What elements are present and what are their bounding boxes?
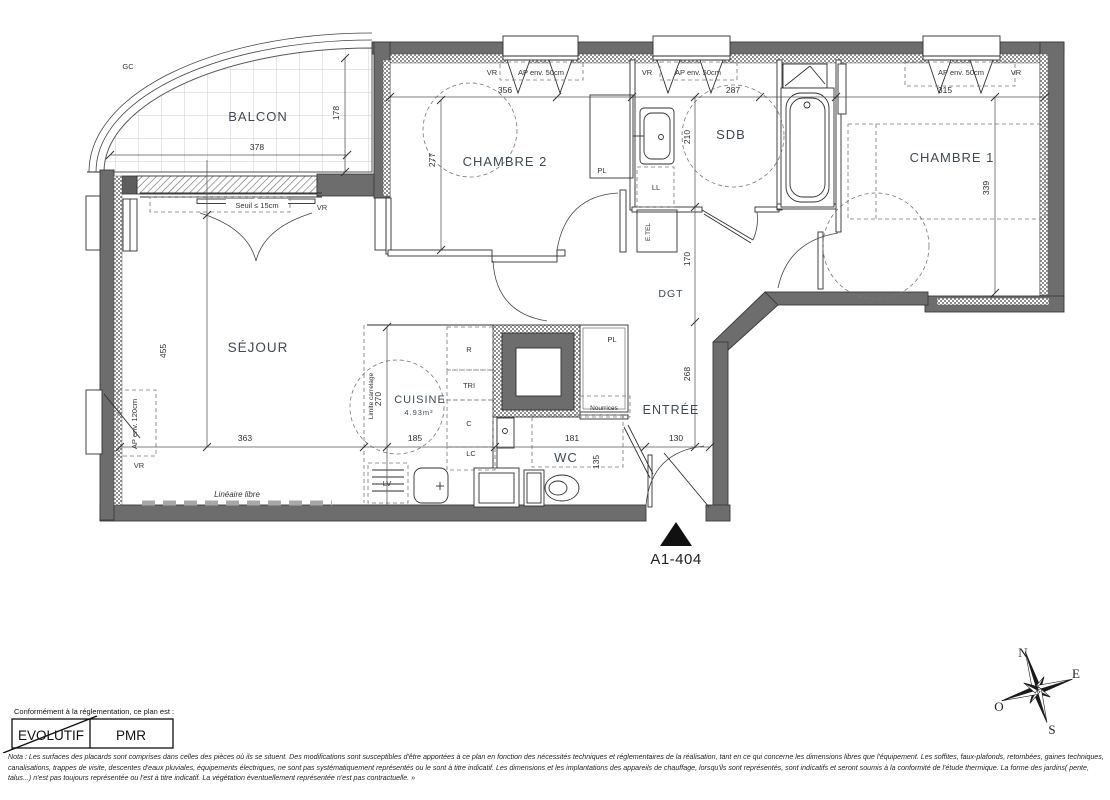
partitions: [386, 60, 841, 507]
vr-label: VR: [487, 68, 498, 77]
gc-label: GC: [122, 62, 134, 71]
room-chambre2: CHAMBRE 2: [463, 154, 548, 169]
lc-label: LC: [466, 449, 476, 458]
wall-foot: [706, 505, 730, 521]
partition: [386, 198, 391, 254]
partition-ch2-sdb: [630, 60, 635, 210]
dim-entree-w: 130: [669, 433, 683, 443]
compass-east: E: [1072, 666, 1080, 681]
unit-id: A1-404: [650, 551, 701, 568]
sdb-washbasin: [633, 108, 674, 164]
vr-label: VR: [134, 461, 145, 470]
door-leaf-chambre2: [620, 190, 626, 252]
legend-evolutif: EVOLUTIF: [18, 728, 84, 743]
legend-intro: Conformément à la réglementation, ce pla…: [14, 707, 174, 716]
nota-text: Nota : Les surfaces des placards sont co…: [8, 752, 1104, 784]
closet-pl-entree: [580, 325, 628, 412]
ap50-label: AP env. 50cm: [938, 68, 984, 77]
legend-pmr: PMR: [116, 728, 146, 743]
insulation: [383, 60, 390, 196]
door-swing-chambre2: [557, 193, 618, 250]
closet-pl-inner: [583, 328, 625, 409]
wall-entree-east: [713, 342, 728, 508]
door-leaf-sdb: [702, 210, 753, 240]
closet-etel: [637, 210, 677, 252]
entrance-triangle-icon: [660, 522, 692, 546]
compass-south: S: [1048, 722, 1055, 737]
entrance-marker: A1-404: [650, 522, 701, 568]
compass-star-icon: [1002, 652, 1073, 723]
dim-cuisine-w: 185: [408, 433, 422, 443]
kitchen-sink: [414, 468, 448, 503]
door-leaf-sejour: [492, 256, 557, 262]
tri-label: TRI: [463, 381, 475, 390]
door-swing-chambre1: [778, 233, 838, 288]
partition-sdb-dgt: [632, 207, 702, 212]
legend: Conformément à la réglementation, ce pla…: [3, 707, 174, 753]
ll-label: LL: [652, 183, 660, 192]
dim-ch1-d: 339: [981, 181, 991, 195]
dim-ch2-d: 277: [427, 153, 437, 167]
door-leaf-entrance: [664, 453, 709, 507]
toilet: [524, 470, 579, 506]
window-sejour-lower: [86, 390, 102, 454]
nourrices-label: Nourrices: [590, 405, 619, 412]
bathtub: [781, 64, 834, 207]
compass-north: N: [1018, 645, 1028, 660]
vr-label: VR: [642, 68, 653, 77]
tray-outer: [474, 468, 519, 507]
door-leaf-chambre1: [818, 232, 823, 289]
wall-block: [317, 174, 374, 196]
dim-wc-w: 181: [565, 433, 579, 443]
floor-plan-drawing: GC: [0, 0, 1110, 753]
wall-east-insulation: [1040, 54, 1048, 295]
floor-plan-page: GC: [0, 0, 1110, 800]
dim-sdb-d: 210: [682, 130, 692, 144]
duct-core: [516, 348, 561, 396]
insulation: [937, 298, 1049, 305]
room-sejour: SÉJOUR: [228, 340, 289, 355]
bath-shelf: [783, 64, 827, 88]
vr-label: VR: [1011, 68, 1022, 77]
wc-shower-tray: [474, 468, 519, 507]
partition-jamb: [557, 250, 565, 256]
radiator: [838, 64, 846, 114]
wall-west: [100, 170, 114, 520]
door-swing-sejour: [493, 261, 547, 321]
room-balcon: BALCON: [228, 109, 287, 124]
wall-dgt-south: [765, 292, 928, 305]
room-sdb: SDB: [716, 127, 746, 142]
room-entree: ENTRÉE: [643, 402, 700, 417]
bed-zone: [848, 124, 1045, 219]
lv-label: LV: [383, 479, 392, 488]
room-cuisine-area: 4.93m²: [404, 408, 433, 417]
balcony-sill: [137, 176, 317, 194]
door-swing: [256, 213, 312, 261]
door-leaf-wc: [624, 427, 650, 478]
door-swing-entrance: [646, 446, 704, 505]
door-leaf-wc: [628, 425, 653, 474]
room-chambre1: CHAMBRE 1: [910, 150, 995, 165]
dim-balcon-d: 178: [331, 106, 341, 120]
pl-label: PL: [607, 335, 616, 344]
room-wc: WC: [554, 450, 578, 465]
vr-label: VR: [317, 203, 328, 212]
dim-balcon-w: 378: [250, 142, 264, 152]
room-dgt: DGT: [658, 288, 683, 300]
seuil-label: Seuil ≤ 15cm: [235, 201, 278, 210]
dim-entree-d: 268: [682, 367, 692, 381]
partition-jamb: [755, 207, 779, 212]
room-cuisine: CUISINE: [394, 394, 446, 406]
window-sejour-upper: [86, 196, 100, 250]
door-leaf-sdb: [704, 214, 751, 243]
dim-ch2-w: 356: [498, 85, 512, 95]
technical-duct: [493, 325, 580, 417]
compass-west: O: [994, 699, 1003, 714]
dim-sejour-w: 363: [238, 433, 252, 443]
dim-ch1-w: 315: [938, 85, 952, 95]
pl-label: PL: [597, 166, 606, 175]
dim-wc-d: 135: [591, 455, 601, 469]
wall-block: [122, 176, 137, 194]
compass-rose: N E O S: [994, 645, 1080, 737]
ap50-label: AP env. 50cm: [518, 68, 564, 77]
dim-sejour-h: 455: [158, 344, 168, 358]
door-swing-sdb: [753, 212, 758, 240]
toilet-bowl: [545, 475, 579, 501]
fridge-label: R: [466, 345, 472, 354]
bathtub-outer: [781, 88, 834, 207]
door-swing: [200, 213, 256, 261]
ap50-label: AP env. 50cm: [675, 68, 721, 77]
ap120-label: AP env. 120cm: [130, 399, 139, 449]
c-label: C: [466, 419, 472, 428]
limite-carrelage-label: Limite carrelage: [368, 372, 375, 419]
radiator: [375, 198, 386, 250]
dim-dgt-d: 170: [682, 252, 692, 266]
wall-south: [100, 505, 646, 521]
lineaire-label: Linéaire libre: [214, 490, 260, 499]
dim-sdb-w: 287: [726, 85, 740, 95]
etel-label: E.TEL: [645, 223, 652, 241]
